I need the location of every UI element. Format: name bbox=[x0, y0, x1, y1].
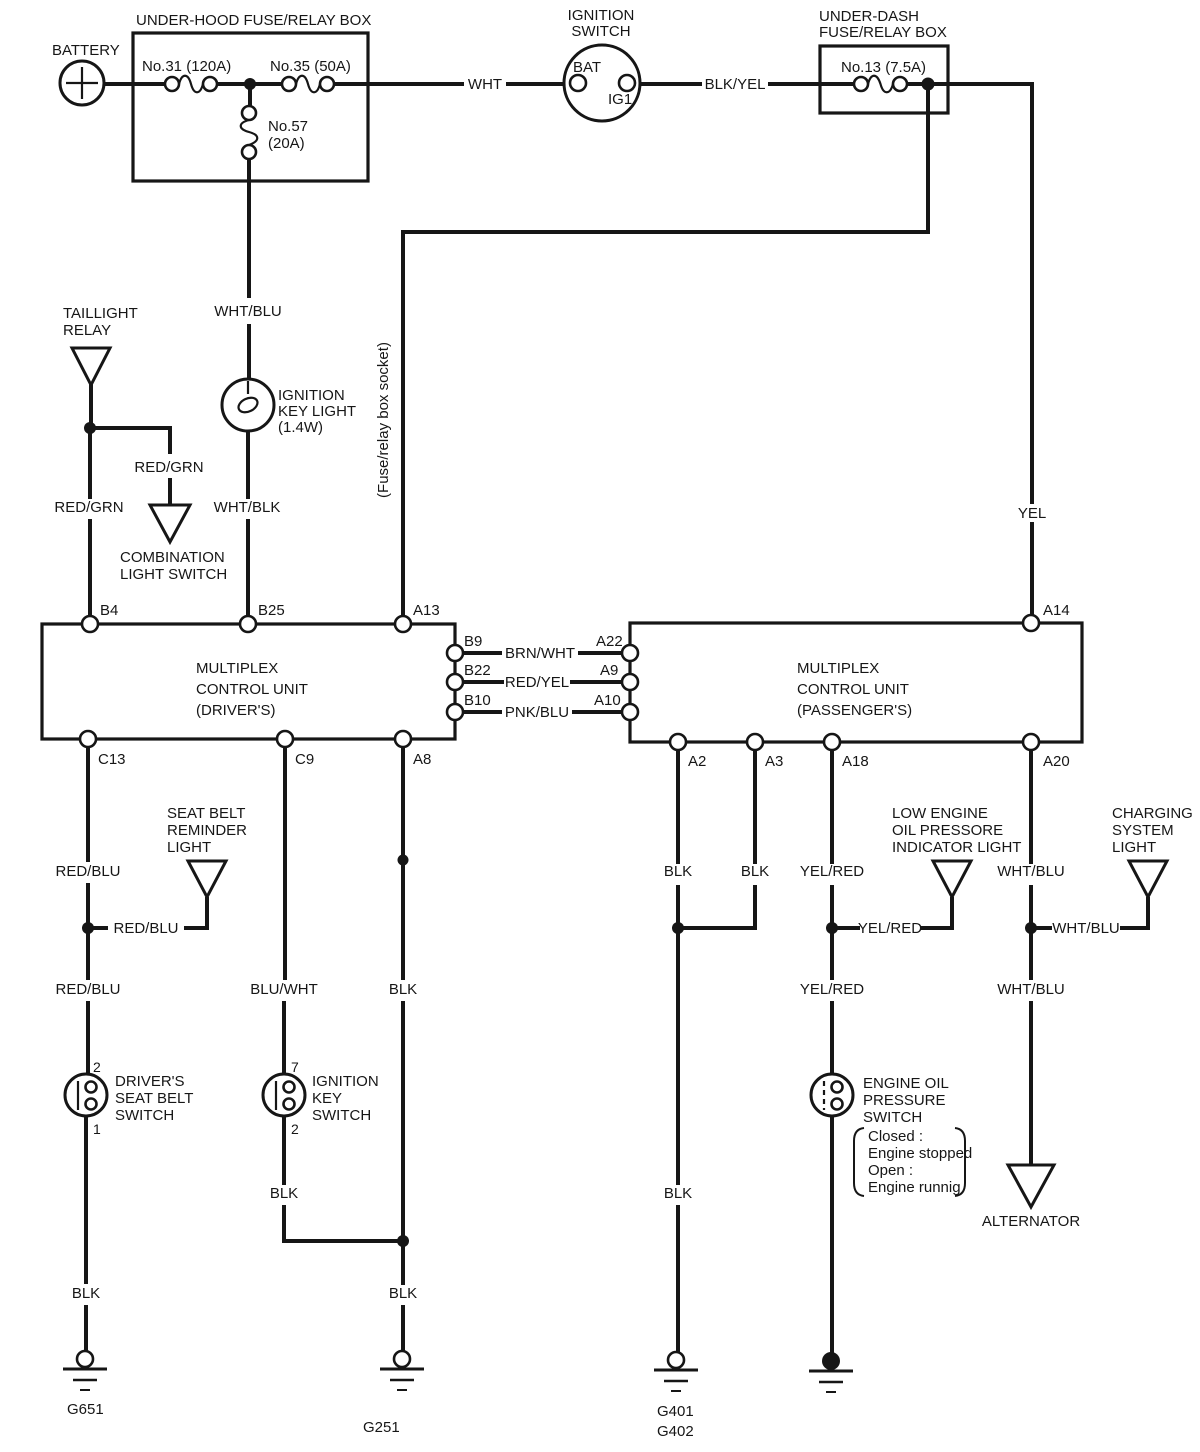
pin-b10 bbox=[447, 704, 463, 720]
ignition-switch: IGNITION SWITCH BAT IG1 bbox=[564, 7, 640, 121]
wire-label-yel-red: YEL/RED bbox=[800, 981, 864, 998]
ground-terminal-icon bbox=[668, 1352, 684, 1368]
wire-label-wht-blu: WHT/BLU bbox=[997, 981, 1065, 998]
mcu-driver-title-line3: (DRIVER'S) bbox=[196, 702, 276, 719]
fuse-element-icon bbox=[241, 120, 258, 145]
junction-dot bbox=[398, 855, 409, 866]
wire-label-red-yel: RED/YEL bbox=[505, 674, 569, 691]
pin-label-a10: A10 bbox=[594, 692, 621, 709]
connector-triangle-icon bbox=[188, 861, 226, 897]
wire-segment bbox=[1122, 899, 1148, 928]
junction-dot bbox=[397, 1235, 409, 1247]
pin-a9 bbox=[622, 674, 638, 690]
ground-label-g401: G401 bbox=[657, 1403, 694, 1420]
mcu-passenger: MULTIPLEX CONTROL UNIT (PASSENGER'S) A14… bbox=[594, 602, 1082, 770]
ignition-key-light: IGNITION KEY LIGHT (1.4W) bbox=[222, 379, 356, 436]
taillight-relay-connector: TAILLIGHT RELAY bbox=[63, 305, 138, 385]
switch-icon bbox=[65, 1074, 107, 1116]
pin-a20 bbox=[1023, 734, 1039, 750]
charging-system-light-connector: CHARGING SYSTEM LIGHT bbox=[1112, 805, 1193, 897]
fuse-terminal bbox=[282, 77, 296, 91]
wiring-diagram-page: BATTERY UNDER-HOOD FUSE/RELAY BOX No.31 … bbox=[0, 0, 1200, 1452]
ignition-switch-title-line2: SWITCH bbox=[571, 23, 630, 40]
pin-a2 bbox=[670, 734, 686, 750]
ground-terminal-icon bbox=[394, 1351, 410, 1367]
wire-label-blk: BLK bbox=[664, 1185, 692, 1202]
connector-triangle-icon bbox=[72, 348, 110, 385]
iks-title-line1: IGNITION bbox=[312, 1073, 379, 1090]
fuse-terminal bbox=[320, 77, 334, 91]
combination-switch-title-line1: COMBINATION bbox=[120, 549, 225, 566]
junction-dot bbox=[1025, 922, 1037, 934]
connector-triangle-icon bbox=[150, 505, 190, 542]
fuse57-label-line2: (20A) bbox=[268, 135, 305, 152]
wire-segment bbox=[403, 84, 928, 616]
wire-label-yel: YEL bbox=[1018, 505, 1046, 522]
note-bracket-left bbox=[854, 1128, 864, 1196]
wire-label-red-grn: RED/GRN bbox=[54, 499, 123, 516]
switch-pin-bottom-label: 1 bbox=[93, 1121, 101, 1137]
terminal-bat bbox=[570, 75, 586, 91]
mcu-passenger-title-line2: CONTROL UNIT bbox=[797, 681, 909, 698]
underdash-box-title-line2: FUSE/RELAY BOX bbox=[819, 24, 947, 41]
mcu-driver-title-line2: CONTROL UNIT bbox=[196, 681, 308, 698]
csl-title-line2: SYSTEM bbox=[1112, 822, 1174, 839]
underhood-box-title: UNDER-HOOD FUSE/RELAY BOX bbox=[136, 12, 371, 29]
pin-label-a22: A22 bbox=[596, 633, 623, 650]
wire-label-red-grn: RED/GRN bbox=[134, 459, 203, 476]
combination-switch-title-line2: LIGHT SWITCH bbox=[120, 566, 227, 583]
pin-c13 bbox=[80, 731, 96, 747]
ground-g651: G651 bbox=[63, 1351, 107, 1418]
eop-title-line3: SWITCH bbox=[863, 1109, 922, 1126]
junction-dot bbox=[82, 922, 94, 934]
pin-a22 bbox=[622, 645, 638, 661]
junction-dot bbox=[672, 922, 684, 934]
pin-b25 bbox=[240, 616, 256, 632]
fuse-terminal bbox=[203, 77, 217, 91]
pin-label-a2: A2 bbox=[688, 753, 706, 770]
pin-label-b9: B9 bbox=[464, 633, 482, 650]
wire-label-blk: BLK bbox=[389, 1285, 417, 1302]
junction-dot bbox=[84, 422, 96, 434]
alternator-label: ALTERNATOR bbox=[982, 1213, 1081, 1230]
dsb-title-line1: DRIVER'S bbox=[115, 1073, 185, 1090]
switch-contact bbox=[86, 1082, 97, 1093]
switch-contact bbox=[832, 1099, 843, 1110]
iks-title-line2: KEY bbox=[312, 1090, 342, 1107]
pin-label-b10: B10 bbox=[464, 692, 491, 709]
fuse57-label-line1: No.57 bbox=[268, 118, 308, 135]
switch-pin-top-label: 2 bbox=[93, 1059, 101, 1075]
alternator-connector: ALTERNATOR bbox=[982, 1165, 1081, 1230]
eop-note-line2: Engine stopped bbox=[868, 1145, 972, 1162]
switch-contact bbox=[86, 1099, 97, 1110]
key-light-title-line1: IGNITION bbox=[278, 387, 345, 404]
terminal-bat-label: BAT bbox=[573, 59, 601, 76]
dsb-title-line3: SWITCH bbox=[115, 1107, 174, 1124]
ground-label-g251: G251 bbox=[363, 1419, 400, 1436]
wire-label-blk: BLK bbox=[741, 863, 769, 880]
mcu-driver-title-line1: MULTIPLEX bbox=[196, 660, 278, 677]
fuse-terminal bbox=[242, 106, 256, 120]
csl-title-line3: LIGHT bbox=[1112, 839, 1156, 856]
junction-dot bbox=[922, 78, 935, 91]
wiring-diagram: BATTERY UNDER-HOOD FUSE/RELAY BOX No.31 … bbox=[0, 0, 1200, 1452]
wire-label-blk: BLK bbox=[270, 1185, 298, 1202]
lop-title-line1: LOW ENGINE bbox=[892, 805, 988, 822]
socket-note: (Fuse/relay box socket) bbox=[375, 342, 392, 498]
eop-note-line1: Closed : bbox=[868, 1128, 923, 1145]
wire-label-yel-red: YEL/RED bbox=[800, 863, 864, 880]
sbr-title-line3: LIGHT bbox=[167, 839, 211, 856]
wire-segment bbox=[186, 899, 207, 928]
fuse-terminal bbox=[854, 77, 868, 91]
pin-label-b25: B25 bbox=[258, 602, 285, 619]
wire-label-wht-blu: WHT/BLU bbox=[997, 863, 1065, 880]
switch-contact bbox=[832, 1082, 843, 1093]
pin-a18 bbox=[824, 734, 840, 750]
connector-triangle-icon bbox=[1008, 1165, 1054, 1207]
eop-note-line3: Open : bbox=[868, 1162, 913, 1179]
pin-a14 bbox=[1023, 615, 1039, 631]
dsb-title-line2: SEAT BELT bbox=[115, 1090, 193, 1107]
wire-label-blk: BLK bbox=[389, 981, 417, 998]
mcu-passenger-title-line1: MULTIPLEX bbox=[797, 660, 879, 677]
wire-label-blk-yel: BLK/YEL bbox=[705, 76, 766, 93]
pin-label-a9: A9 bbox=[600, 662, 618, 679]
seat-belt-reminder-light-connector: SEAT BELT REMINDER LIGHT bbox=[167, 805, 247, 897]
ground-terminal-icon bbox=[822, 1352, 840, 1370]
junction-dot bbox=[826, 922, 838, 934]
battery-label: BATTERY bbox=[52, 42, 120, 59]
ground-oil-pressure-switch bbox=[809, 1352, 853, 1392]
pin-label-a8: A8 bbox=[413, 751, 431, 768]
lop-title-line3: INDICATOR LIGHT bbox=[892, 839, 1021, 856]
wire-label-wht-blu: WHT/BLU bbox=[214, 303, 282, 320]
wire-label-blk: BLK bbox=[72, 1285, 100, 1302]
wire-label-blu-wht: BLU/WHT bbox=[250, 981, 318, 998]
taillight-relay-title-line1: TAILLIGHT bbox=[63, 305, 138, 322]
battery-symbol: BATTERY bbox=[52, 42, 120, 105]
pin-a3 bbox=[747, 734, 763, 750]
switch-pin-bottom-label: 2 bbox=[291, 1121, 299, 1137]
iks-title-line3: SWITCH bbox=[312, 1107, 371, 1124]
switch-pin-top-label: 7 bbox=[291, 1059, 299, 1075]
pin-label-a14: A14 bbox=[1043, 602, 1070, 619]
fuse-element-icon bbox=[296, 76, 320, 93]
pin-b22 bbox=[447, 674, 463, 690]
wire-label-yel-red: YEL/RED bbox=[858, 920, 922, 937]
ground-terminal-icon bbox=[77, 1351, 93, 1367]
wire-label-wht-blu: WHT/BLU bbox=[1052, 920, 1120, 937]
switch-icon bbox=[811, 1074, 853, 1116]
wire-label-wht: WHT bbox=[468, 76, 502, 93]
fuse-terminal bbox=[242, 145, 256, 159]
wire-label-wht-blk: WHT/BLK bbox=[214, 499, 281, 516]
pin-b9 bbox=[447, 645, 463, 661]
switch-contact bbox=[284, 1099, 295, 1110]
underhood-fuse-box: UNDER-HOOD FUSE/RELAY BOX No.31 (120A) N… bbox=[133, 12, 371, 181]
switch-contact bbox=[284, 1082, 295, 1093]
fuse-terminal bbox=[165, 77, 179, 91]
fuse31-label: No.31 (120A) bbox=[142, 58, 231, 75]
pin-label-a18: A18 bbox=[842, 753, 869, 770]
lop-title-line2: OIL PRESSORE bbox=[892, 822, 1003, 839]
fuse-element-icon bbox=[868, 76, 893, 93]
eop-title-line1: ENGINE OIL bbox=[863, 1075, 949, 1092]
ground-g401-g402: G401 G402 bbox=[654, 1352, 698, 1440]
ground-label-g651: G651 bbox=[67, 1401, 104, 1418]
combination-light-switch-connector: COMBINATION LIGHT SWITCH bbox=[120, 505, 227, 583]
ground-label-g402: G402 bbox=[657, 1423, 694, 1440]
ignition-switch-title-line1: IGNITION bbox=[568, 7, 635, 24]
eop-note-line4: Engine runnig bbox=[868, 1179, 961, 1196]
underdash-box-title-line1: UNDER-DASH bbox=[819, 8, 919, 25]
low-oil-pressure-light-connector: LOW ENGINE OIL PRESSORE INDICATOR LIGHT bbox=[892, 805, 1021, 897]
fuse-element-icon bbox=[179, 76, 203, 93]
csl-title-line1: CHARGING bbox=[1112, 805, 1193, 822]
ignition-key-switch: 7 2 IGNITION KEY SWITCH bbox=[263, 1059, 379, 1137]
connector-triangle-icon bbox=[1129, 861, 1167, 897]
wire-segment bbox=[284, 1207, 403, 1241]
mcu-driver: MULTIPLEX CONTROL UNIT (DRIVER'S) B4 B25… bbox=[42, 602, 491, 768]
pin-label-a20: A20 bbox=[1043, 753, 1070, 770]
pin-label-b22: B22 bbox=[464, 662, 491, 679]
wire-label-red-blu: RED/BLU bbox=[55, 981, 120, 998]
ground-g251: G251 bbox=[363, 1351, 424, 1436]
fuse13-label: No.13 (7.5A) bbox=[841, 59, 926, 76]
engine-oil-pressure-switch: ENGINE OIL PRESSURE SWITCH Closed : Engi… bbox=[811, 1074, 972, 1196]
pin-c9 bbox=[277, 731, 293, 747]
eop-title-line2: PRESSURE bbox=[863, 1092, 946, 1109]
mcu-passenger-title-line3: (PASSENGER'S) bbox=[797, 702, 912, 719]
wire-label-brn-wht: BRN/WHT bbox=[505, 645, 575, 662]
taillight-relay-title-line2: RELAY bbox=[63, 322, 111, 339]
pin-label-a3: A3 bbox=[765, 753, 783, 770]
pin-a8 bbox=[395, 731, 411, 747]
switch-icon bbox=[263, 1074, 305, 1116]
pin-label-c13: C13 bbox=[98, 751, 126, 768]
wire-label-blk: BLK bbox=[664, 863, 692, 880]
fuse-terminal bbox=[893, 77, 907, 91]
sbr-title-line2: REMINDER bbox=[167, 822, 247, 839]
fuse35-label: No.35 (50A) bbox=[270, 58, 351, 75]
sbr-title-line1: SEAT BELT bbox=[167, 805, 245, 822]
pin-label-b4: B4 bbox=[100, 602, 118, 619]
junction-dot bbox=[244, 78, 256, 90]
key-light-title-line2: KEY LIGHT bbox=[278, 403, 356, 420]
wire-segment bbox=[684, 887, 755, 928]
wire-label-red-blu: RED/BLU bbox=[55, 863, 120, 880]
pin-label-c9: C9 bbox=[295, 751, 314, 768]
wire-label-pnk-blu: PNK/BLU bbox=[505, 704, 569, 721]
pin-a13 bbox=[395, 616, 411, 632]
wire-label-red-blu: RED/BLU bbox=[113, 920, 178, 937]
connector-triangle-icon bbox=[933, 861, 971, 897]
wire-segment bbox=[922, 899, 952, 928]
terminal-ig1 bbox=[619, 75, 635, 91]
pin-label-a13: A13 bbox=[413, 602, 440, 619]
pin-a10 bbox=[622, 704, 638, 720]
terminal-ig1-label: IG1 bbox=[608, 91, 632, 108]
pin-b4 bbox=[82, 616, 98, 632]
key-light-title-line3: (1.4W) bbox=[278, 419, 323, 436]
